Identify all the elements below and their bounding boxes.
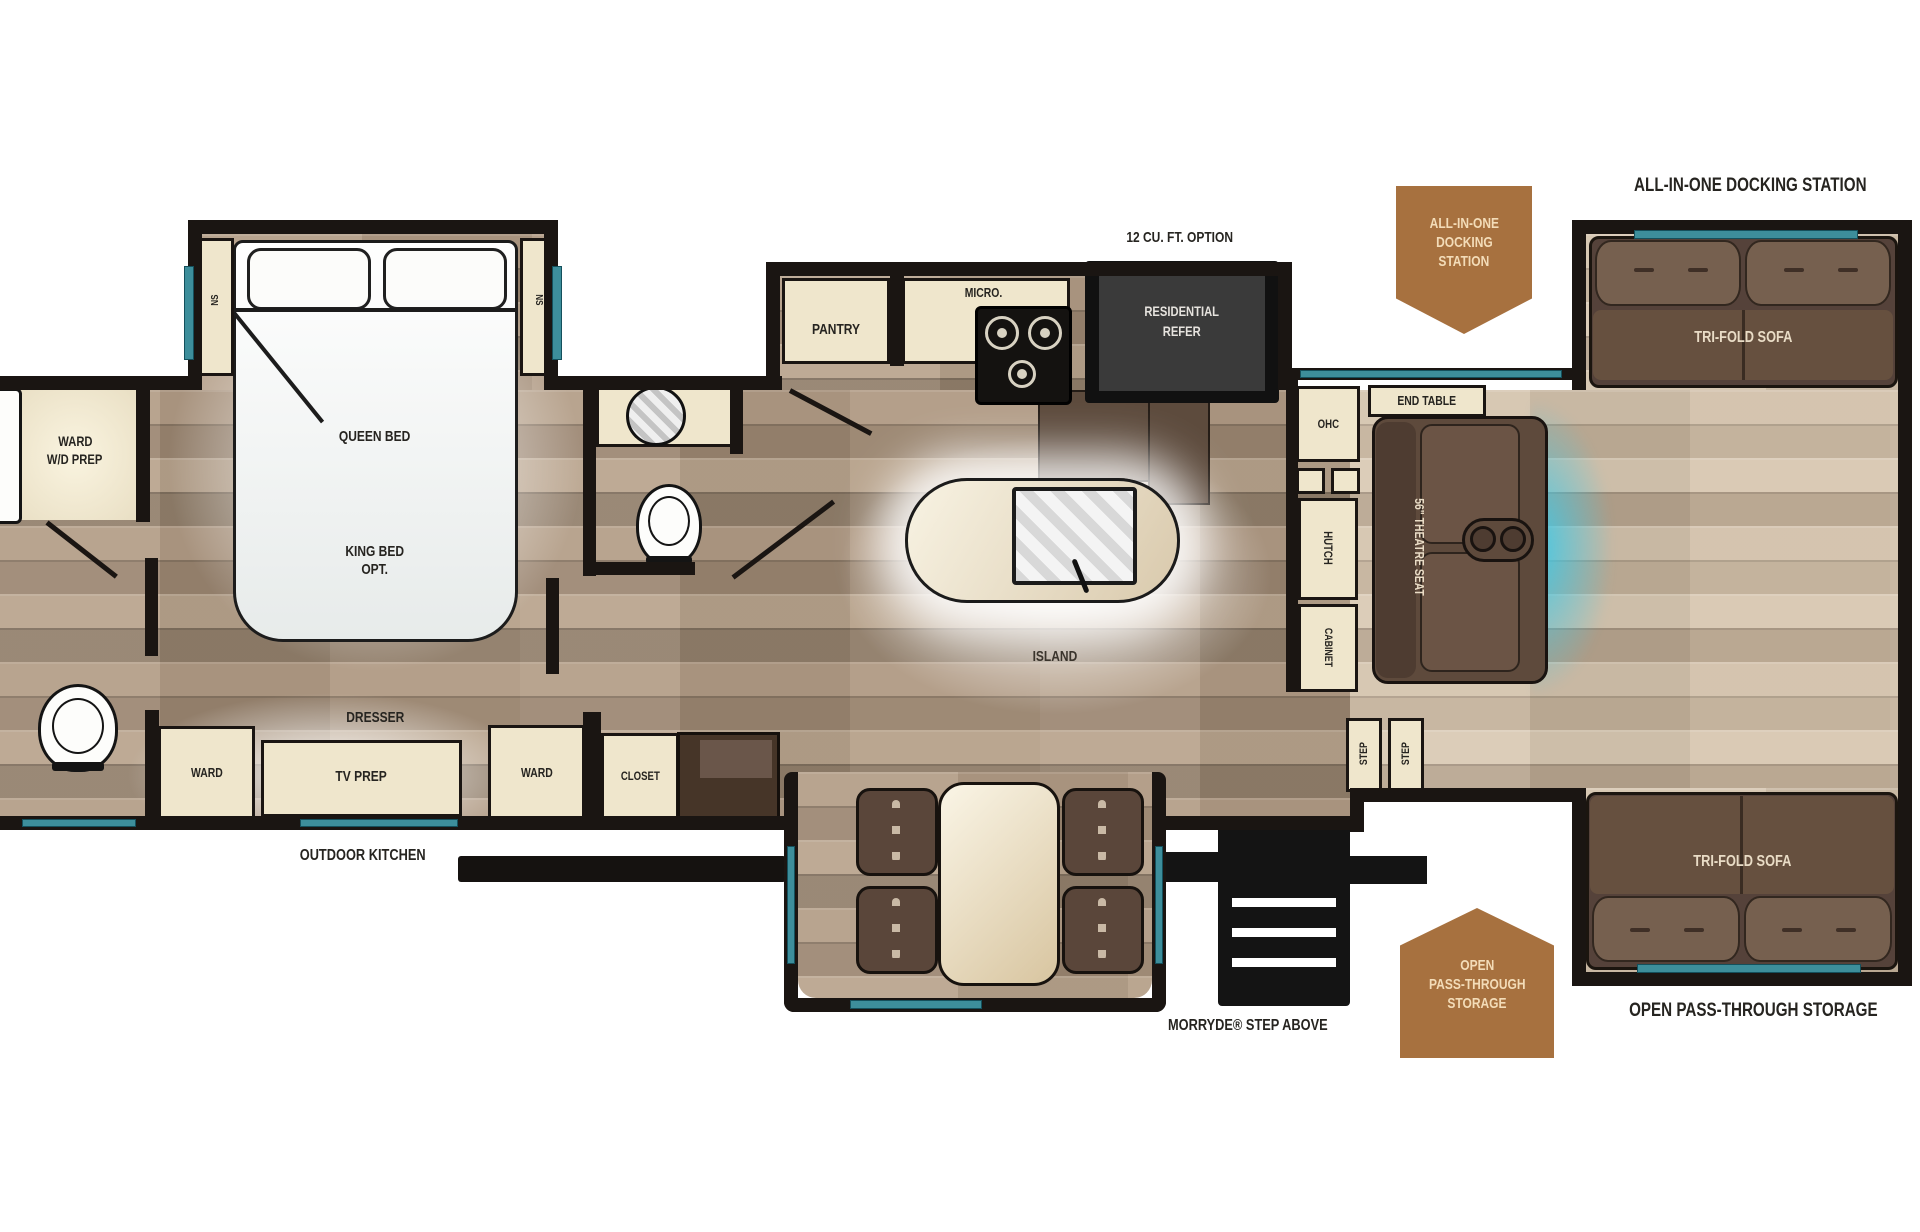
sofa-top-stitch-3 (1784, 268, 1804, 272)
queen-bed-label: QUEEN BED (300, 426, 450, 446)
wall-wd-room-right (136, 388, 150, 522)
wall-bath-bottom (583, 562, 695, 575)
window-dinette-right (1155, 846, 1163, 964)
entertainment-cabinet-inner (700, 740, 772, 778)
wall-right-end (1898, 220, 1912, 986)
sofa-top-stitch-2 (1688, 268, 1708, 272)
wall-bath-right-upper (730, 382, 743, 454)
docking-station-callout: ALL-IN-ONE DOCKING STATION (1598, 174, 1902, 198)
theatre-seat-label: 56" THEATRE SEAT (1411, 427, 1429, 667)
ohc-mini-cabinet-left (1296, 468, 1325, 494)
sofa-top-label: TRI-FOLD SOFA (1589, 328, 1898, 348)
dinette-chair-3-dots (1098, 800, 1106, 862)
window-sofa-top (1634, 230, 1858, 239)
wall-sofaslide-bottom-bottom (1572, 972, 1912, 986)
step-right-label: STEP (1396, 724, 1416, 784)
kitchen-divider-wall (890, 276, 904, 366)
window-sofa-bottom (1637, 964, 1861, 973)
sofa-bottom-stitch-3 (1782, 928, 1802, 932)
window-bedroom-right (552, 266, 562, 360)
wall-sofaslide-bottom-left (1572, 788, 1586, 986)
closet-label: CLOSET (601, 766, 679, 786)
sofa-top-back-cushion-right (1745, 240, 1891, 306)
cooktop-burner-right (1028, 316, 1062, 350)
cabinet-label: CABINET (1319, 597, 1337, 697)
wall-top-mid (544, 376, 782, 390)
bed-pillow-left (247, 248, 371, 310)
bed-pillow-right (383, 248, 507, 310)
window-front-right (300, 819, 458, 827)
refer-label-line2: REFER (1099, 322, 1265, 340)
sofa-bottom-label: TRI-FOLD SOFA (1586, 852, 1898, 872)
wall-front-bath-lower (145, 710, 159, 830)
wall-bottom-stairs (1160, 816, 1360, 830)
dresser-label: DRESSER (298, 706, 453, 728)
wall-front-bath-upper (145, 558, 158, 656)
sofa-top-back-cushion-left (1595, 240, 1741, 306)
sofa-bottom-stitch-4 (1836, 928, 1856, 932)
window-dinette-left (787, 846, 795, 964)
theatre-cupholder-left (1470, 526, 1496, 552)
shower-partial (0, 388, 22, 524)
theatre-cupholder-right (1500, 526, 1526, 552)
wall-sofaslide-top-left (1572, 220, 1586, 390)
morryde-staircase-tread-2 (1232, 928, 1336, 937)
wall-kitchenslide-top (766, 262, 1292, 276)
morryde-staircase (1218, 822, 1350, 1006)
dinette-chair-1-dots (892, 800, 900, 862)
refer-option-label: 12 CU. FT. OPTION (1096, 226, 1264, 248)
king-bed-opt-label-line2: OPT. (300, 560, 450, 578)
pass-through-callout: OPEN PASS-THROUGH STORAGE (1594, 998, 1912, 1024)
window-dinette-bottom (850, 1000, 982, 1009)
wall-bedslide-top (188, 220, 558, 234)
pantry-label: PANTRY (782, 318, 890, 340)
hutch-label: HUTCH (1318, 498, 1338, 598)
wall-bed-hall (546, 578, 559, 674)
king-bed-opt-label-line1: KING BED (300, 542, 450, 560)
outdoor-kitchen-label: OUTDOOR KITCHEN (265, 844, 460, 868)
step-left-label: STEP (1354, 724, 1374, 784)
pass-through-storage-badge: OPEN PASS-THROUGH STORAGE (1400, 908, 1554, 1058)
ward-front-label: WARD (158, 762, 255, 782)
sofa-bottom-stitch-2 (1684, 928, 1704, 932)
wall-bath-left (583, 382, 596, 576)
micro-label: MICRO. (938, 282, 1028, 302)
island-label: ISLAND (995, 646, 1115, 666)
window-bedroom-left (184, 266, 194, 360)
sofa-bottom-seam (1740, 796, 1743, 894)
ward-wd-prep-label-line2: W/D PREP (14, 450, 136, 468)
ward-wd-prep-label-line1: WARD (14, 432, 136, 450)
wall-kitchenslide-left (766, 262, 780, 390)
refer-label-line1: RESIDENTIAL (1099, 302, 1265, 320)
front-toilet-base (52, 762, 104, 771)
wall-top-left (0, 376, 202, 390)
morryde-step-label: MORRYDE® STEP ABOVE (1138, 1014, 1358, 1038)
window-front-left (22, 819, 136, 827)
bath-toilet-inner (648, 496, 690, 546)
kitchen-counter-return (1148, 390, 1210, 505)
sofa-top-stitch-4 (1838, 268, 1858, 272)
docking-station-badge: ALL-IN-ONE DOCKING STATION (1396, 186, 1532, 334)
bath-sink-basin (626, 386, 686, 446)
ward-hall-label: WARD (488, 762, 585, 782)
bed-sheet-line (236, 308, 516, 312)
sofa-bottom-stitch-1 (1630, 928, 1650, 932)
theatre-seat-back (1376, 422, 1416, 678)
theatre-seat-cushion-bottom (1420, 552, 1520, 672)
sofa-bottom-back-cushion-right (1744, 896, 1892, 962)
wall-ward-closet-post (583, 712, 601, 828)
ohc-label: OHC (1296, 414, 1360, 434)
sofa-top-stitch-1 (1634, 268, 1654, 272)
wall-bottom-right (1350, 788, 1580, 802)
window-living-top (1300, 370, 1562, 378)
nightstand-left-label: NS (205, 281, 225, 319)
morryde-step-left-rail (1166, 852, 1220, 882)
dinette-table (938, 782, 1060, 986)
dinette-chair-4-dots (1098, 898, 1106, 960)
cooktop-burner-left (985, 316, 1019, 350)
ohc-mini-cabinet-right (1331, 468, 1360, 494)
dinette-chair-2-dots (892, 898, 900, 960)
cooktop-burner-small (1008, 360, 1036, 388)
morryde-step-right-rail (1349, 856, 1427, 884)
tv-prep-label: TV PREP (261, 766, 462, 786)
morryde-staircase-tread-3 (1232, 958, 1336, 967)
end-table-label: END TABLE (1368, 387, 1486, 413)
front-toilet-inner (52, 698, 104, 754)
outdoor-kitchen-door (458, 856, 786, 882)
morryde-staircase-tread-1 (1232, 898, 1336, 907)
sofa-bottom-back-cushion-left (1592, 896, 1740, 962)
